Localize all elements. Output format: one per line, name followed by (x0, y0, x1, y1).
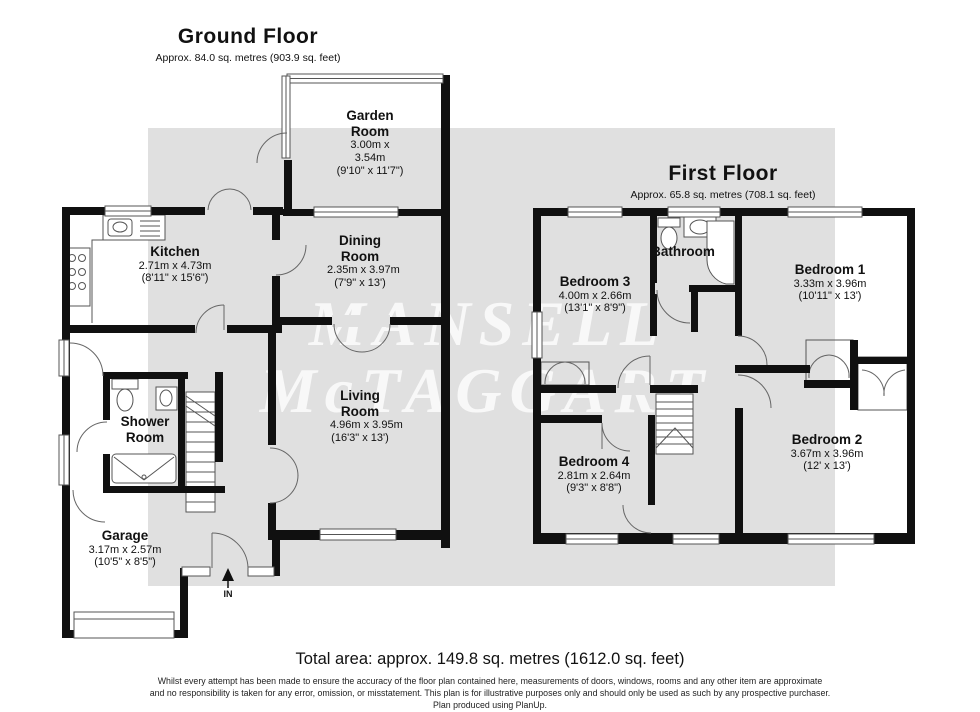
total-area-text: Total area: approx. 149.8 sq. metres (16… (296, 650, 685, 669)
first-floor-title-text: First Floor (630, 162, 815, 186)
room-label-shower-room: Shower Room (113, 414, 177, 445)
room-label-living-room: Living Room 4.96m x 3.95m (16'3" x 13') (330, 388, 390, 445)
disclaimer-line-3: Plan produced using PlanUp. (433, 700, 547, 710)
ground-floor-stairs (186, 392, 215, 512)
floorplan-drawing: MANSELL McTAGGART (0, 0, 980, 712)
toilet-bowl (117, 389, 133, 411)
room-label-garden-room: Garden Room 3.00m x 3.54m (9'10" x 11'7"… (335, 108, 405, 178)
garage-door (74, 612, 174, 638)
room-label-bedroom-1: Bedroom 1 3.33m x 3.96m (10'11" x 13') (775, 262, 885, 303)
room-label-dining-room: Dining Room 2.35m x 3.97m (7'9" x 13') (327, 233, 393, 290)
ground-floor-title-text: Ground Floor (155, 25, 340, 49)
floorplan-page: MANSELL McTAGGART (0, 0, 980, 712)
room-label-bedroom-4: Bedroom 4 2.81m x 2.64m (9'3" x 8'8") (539, 454, 649, 495)
ground-floor-area-text: Approx. 84.0 sq. metres (903.9 sq. feet) (155, 52, 340, 64)
entrance-in-label: IN (224, 589, 233, 599)
first-floor-stairs (656, 394, 693, 454)
disclaimer-line-2: and no responsibility is taken for any e… (150, 688, 830, 698)
first-floor-area-text: Approx. 65.8 sq. metres (708.1 sq. feet) (630, 189, 815, 201)
room-label-bedroom-2: Bedroom 2 3.67m x 3.96m (12' x 13') (772, 432, 882, 473)
room-label-bathroom: Bathroom (638, 244, 728, 260)
ground-floor-title: Ground Floor Approx. 84.0 sq. metres (90… (155, 25, 340, 64)
room-label-garage: Garage 3.17m x 2.57m (10'5" x 8'5") (65, 528, 185, 569)
toilet-cistern (112, 379, 138, 389)
disclaimer-line-1: Whilst every attempt has been made to en… (158, 676, 823, 686)
toilet-cistern (658, 218, 680, 227)
room-label-bedroom-3: Bedroom 3 4.00m x 2.66m (13'1" x 8'9") (540, 274, 650, 315)
room-label-kitchen: Kitchen 2.71m x 4.73m (8'11" x 15'6") (120, 244, 230, 285)
first-floor-title: First Floor Approx. 65.8 sq. metres (708… (630, 162, 815, 201)
